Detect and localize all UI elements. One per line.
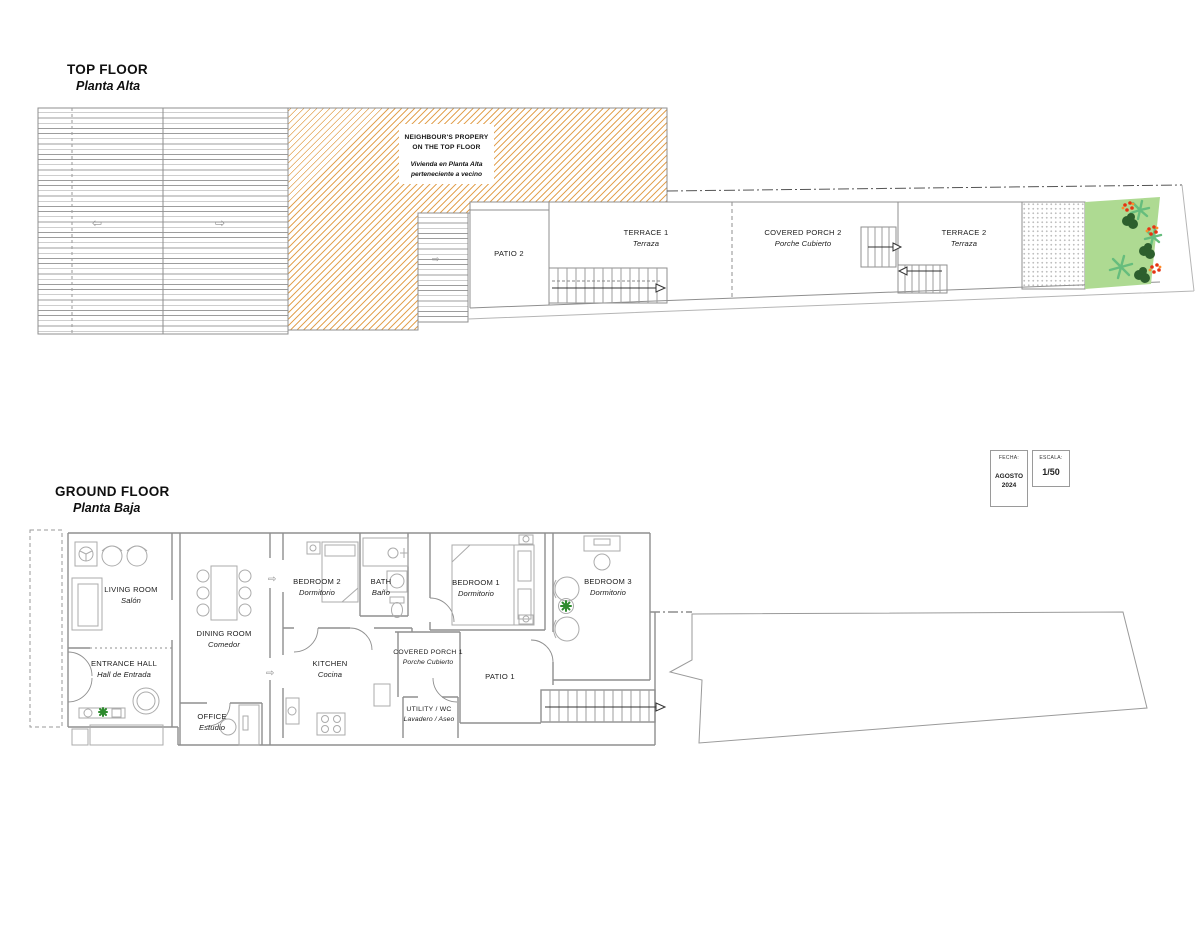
pavement-boundary <box>30 530 62 727</box>
room-label-kitchen: KITCHEN Cocina <box>312 658 347 680</box>
dining-table-icon <box>197 566 251 620</box>
armchair-icon <box>102 546 147 566</box>
sink-icon <box>286 698 299 724</box>
room-label-bedroom3: BEDROOM 3 Dormitorio <box>584 576 632 598</box>
slope-arrow-left-icon: ⇦ <box>92 216 102 230</box>
room-label-patio2: PATIO 2 <box>494 248 524 259</box>
ground-floor-subtitle: Planta Baja <box>73 501 140 515</box>
room-label-bedroom1: BEDROOM 1 Dormitorio <box>452 577 500 599</box>
stove-icon <box>317 713 345 735</box>
hall-table-icon <box>133 688 159 714</box>
scale-label: ESCALA: <box>1033 455 1069 461</box>
ground-floor-title: GROUND FLOOR <box>55 484 170 499</box>
flow-arrow-icon: ⇨ <box>266 668 274 679</box>
room-label-covered-porch1: COVERED PORCH 1 Porche Cubierto <box>393 648 462 668</box>
floor-plan-sheet: NEIGHBOUR'S PROPERY ON THE TOP FLOOR Viv… <box>0 0 1200 926</box>
arrowhead-icon <box>656 284 665 292</box>
room-label-patio1: PATIO 1 <box>485 671 515 682</box>
desk-icon <box>584 536 620 570</box>
slope-arrow-right-icon: ⇨ <box>215 216 225 230</box>
date-year: 2024 <box>991 482 1027 489</box>
room-label-terrace1: TERRACE 1 Terraza <box>624 227 669 249</box>
arrowhead-icon <box>899 267 907 275</box>
arrowhead-icon <box>656 703 665 711</box>
garden <box>1085 197 1161 289</box>
slope-arrow-strip-icon: ⇨ <box>432 254 440 264</box>
room-label-dining-room: DINING ROOM Comedor <box>196 628 251 650</box>
roof-slope-arrows: ⇦ ⇨ ⇨ <box>92 216 440 264</box>
ground-floor-stairs <box>550 690 649 722</box>
top-floor-walls <box>38 108 1160 334</box>
entrance-planter <box>90 725 163 745</box>
room-label-bedroom2: BEDROOM 2 Dormitorio <box>293 576 341 598</box>
furniture <box>72 535 620 745</box>
date-month: AGOSTO <box>991 473 1027 480</box>
room-label-living-room: LIVING ROOM Salón <box>104 584 157 606</box>
kitchen-counter <box>374 684 390 706</box>
date-label: FECHA: <box>991 455 1027 461</box>
side-table-icon <box>75 542 97 566</box>
room-label-utility: UTILITY / WC Lavadero / Aseo <box>404 705 455 725</box>
flow-arrows: ⇨ ⇨ <box>266 574 276 679</box>
titleblock-date: FECHA: AGOSTO 2024 <box>990 450 1028 507</box>
rear-plot-outline <box>670 612 1147 743</box>
flow-arrow-icon: ⇨ <box>268 574 276 585</box>
room-label-entrance-hall: ENTRANCE HALL Hall de Entrada <box>91 658 157 680</box>
room-label-bath: BATH Baño <box>371 576 392 598</box>
entrance-step <box>72 729 88 745</box>
property-boundary-line <box>667 185 1182 191</box>
scale-value: 1/50 <box>1033 467 1069 477</box>
room-label-office: OFFICE Estudio <box>197 711 226 733</box>
sofa-icon <box>72 578 102 630</box>
top-floor-subtitle: Planta Alta <box>76 79 140 93</box>
titleblock-scale: ESCALA: 1/50 <box>1032 450 1070 487</box>
room-label-covered-porch2: COVERED PORCH 2 Porche Cubierto <box>764 227 841 249</box>
ground-floor-walls <box>68 533 655 745</box>
room-label-terrace2: TERRACE 2 Terraza <box>942 227 987 249</box>
arrowhead-icon <box>893 243 901 251</box>
top-floor-stairs <box>558 227 940 303</box>
top-floor-title: TOP FLOOR <box>67 62 148 77</box>
ground-stair-arrow <box>545 703 665 711</box>
